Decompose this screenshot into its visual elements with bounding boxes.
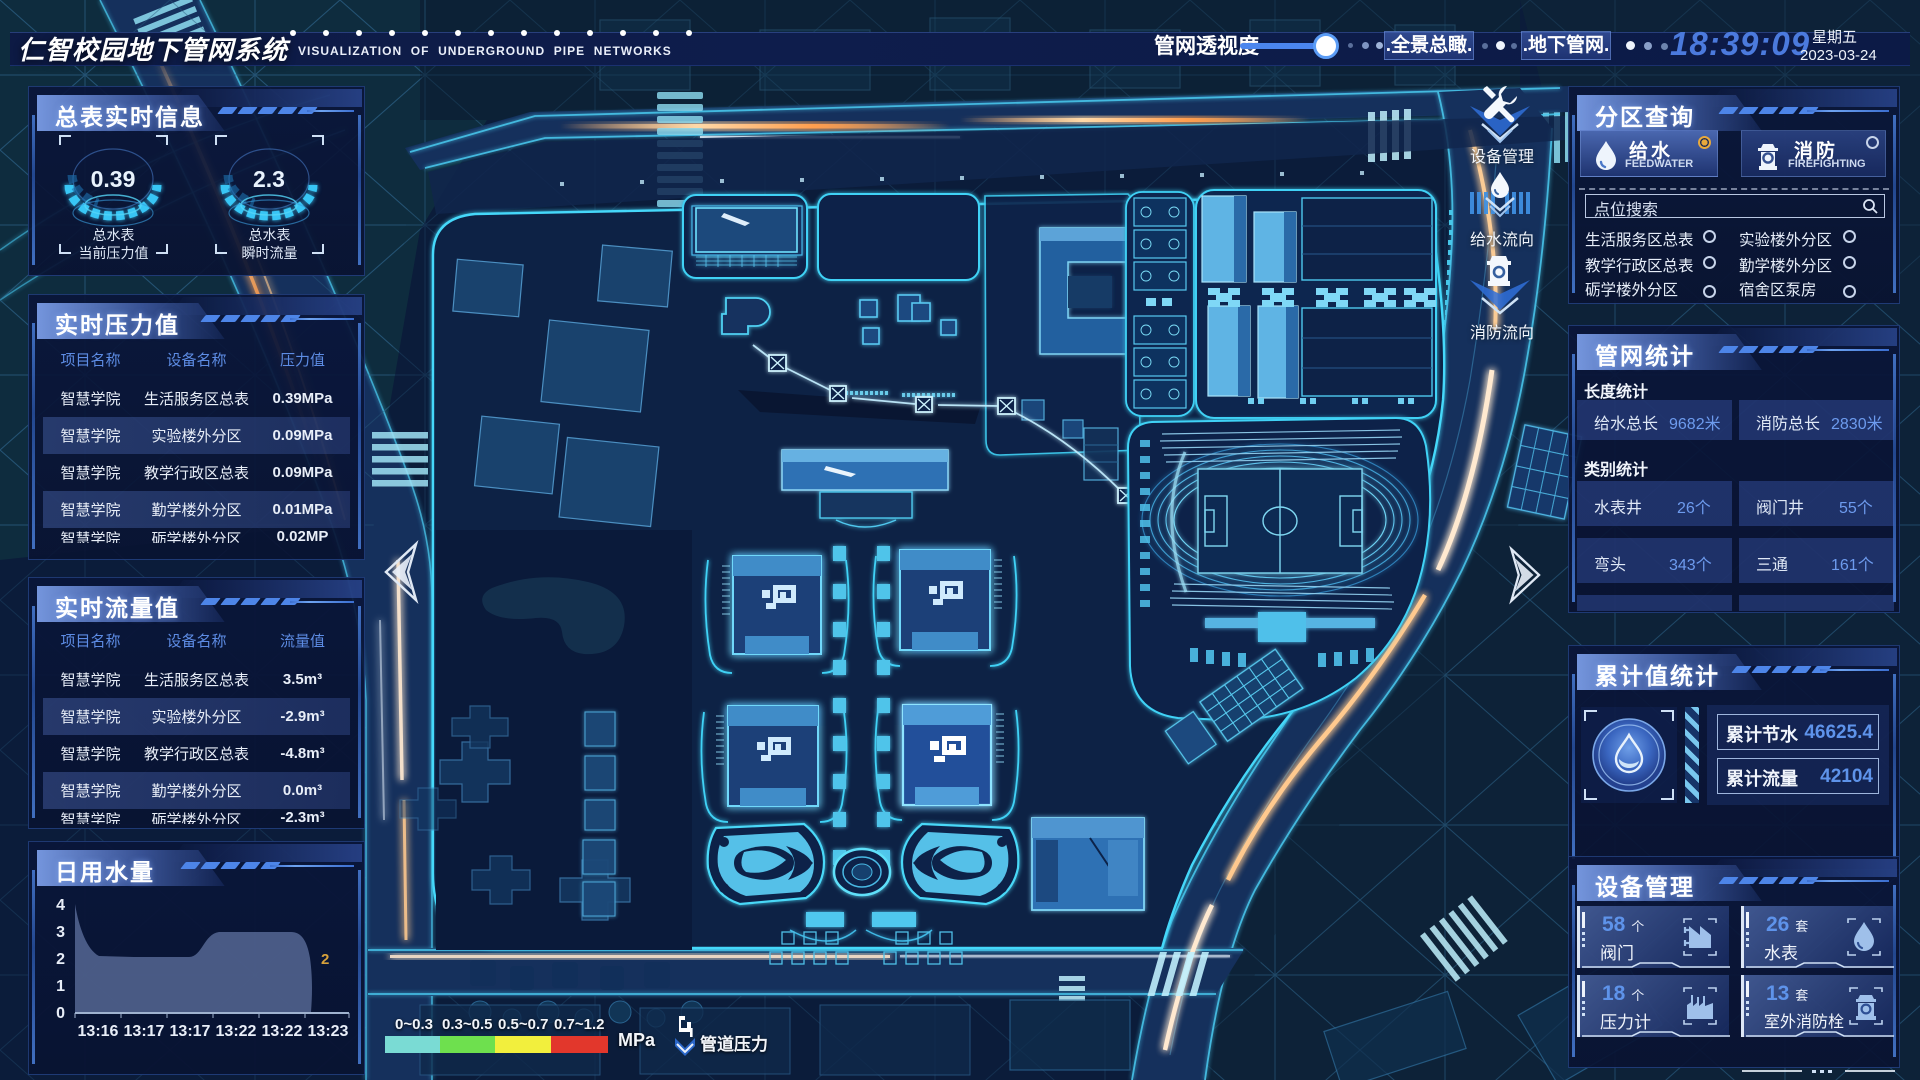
svg-text:0.39: 0.39 [91,166,136,192]
svg-text:1: 1 [56,978,65,995]
svg-text:2: 2 [56,951,65,968]
svg-text:13:17: 13:17 [170,1023,211,1040]
svg-text:2: 2 [321,951,329,968]
svg-text:13:23: 13:23 [308,1023,349,1040]
svg-text:0: 0 [56,1005,65,1022]
svg-text:13:16: 13:16 [78,1023,119,1040]
svg-text:3: 3 [56,924,65,941]
svg-text:13:17: 13:17 [124,1023,165,1040]
svg-text:13:22: 13:22 [262,1023,303,1040]
svg-text:13:22: 13:22 [216,1023,257,1040]
svg-text:2.3: 2.3 [253,166,285,192]
svg-text:4: 4 [56,897,65,914]
